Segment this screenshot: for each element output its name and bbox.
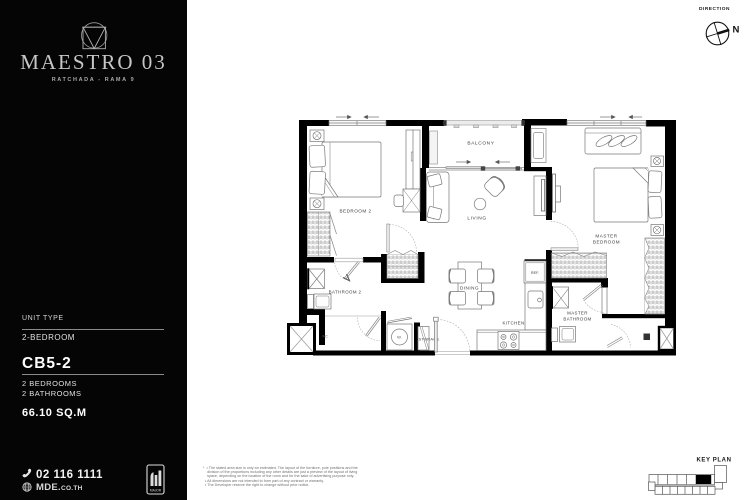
- svg-text:N: N: [733, 25, 740, 36]
- svg-text:LIVING: LIVING: [467, 216, 486, 222]
- svg-text:BATHROOM 2: BATHROOM 2: [329, 290, 362, 295]
- svg-text:KEY PLAN: KEY PLAN: [696, 458, 731, 464]
- svg-text:WC: WC: [322, 335, 328, 339]
- svg-text:REF.: REF.: [531, 271, 539, 275]
- svg-text:W.: W.: [397, 335, 402, 340]
- svg-text:BEDROOM 2: BEDROOM 2: [339, 209, 371, 214]
- svg-text:BATHROOM: BATHROOM: [563, 317, 591, 322]
- svg-text:BALCONY: BALCONY: [467, 141, 494, 147]
- svg-text:MASTER: MASTER: [567, 311, 588, 316]
- svg-text:DINING: DINING: [460, 286, 479, 291]
- svg-text:KITCHEN: KITCHEN: [502, 321, 524, 326]
- svg-text:MASTER: MASTER: [595, 234, 617, 239]
- svg-text:DIRECTION: DIRECTION: [699, 6, 730, 12]
- svg-text:BEDROOM: BEDROOM: [593, 240, 620, 245]
